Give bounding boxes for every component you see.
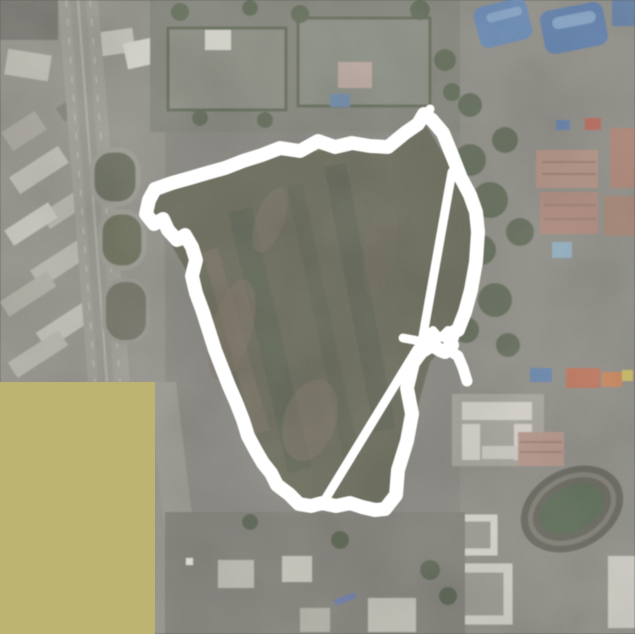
satellite-map-view: [0, 0, 635, 634]
beige-mask-rectangle: [0, 382, 155, 634]
gps-blob: [174, 234, 186, 246]
gps-blob: [425, 335, 439, 349]
gps-blob: [153, 217, 163, 227]
gps-peak-notch: [425, 109, 430, 120]
map-canvas: [0, 0, 635, 634]
gps-blob: [441, 332, 453, 344]
gps-blob: [437, 344, 449, 356]
